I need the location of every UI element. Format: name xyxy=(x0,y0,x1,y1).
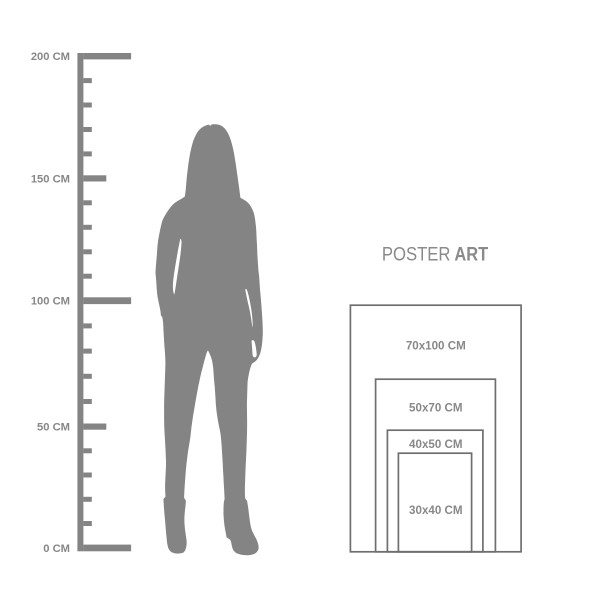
svg-text:50x70 CM: 50x70 CM xyxy=(409,401,463,414)
svg-text:70x100 CM: 70x100 CM xyxy=(406,340,466,353)
svg-text:50 CM: 50 CM xyxy=(37,422,70,434)
svg-text:200 CM: 200 CM xyxy=(31,51,70,63)
svg-text:40x50 CM: 40x50 CM xyxy=(409,438,463,451)
svg-text:ART: ART xyxy=(454,243,488,265)
svg-text:150 CM: 150 CM xyxy=(31,173,70,185)
svg-text:30x40 CM: 30x40 CM xyxy=(409,504,463,517)
svg-text:100 CM: 100 CM xyxy=(31,296,70,308)
svg-text:POSTER: POSTER xyxy=(382,243,451,265)
svg-text:0 CM: 0 CM xyxy=(43,543,70,555)
